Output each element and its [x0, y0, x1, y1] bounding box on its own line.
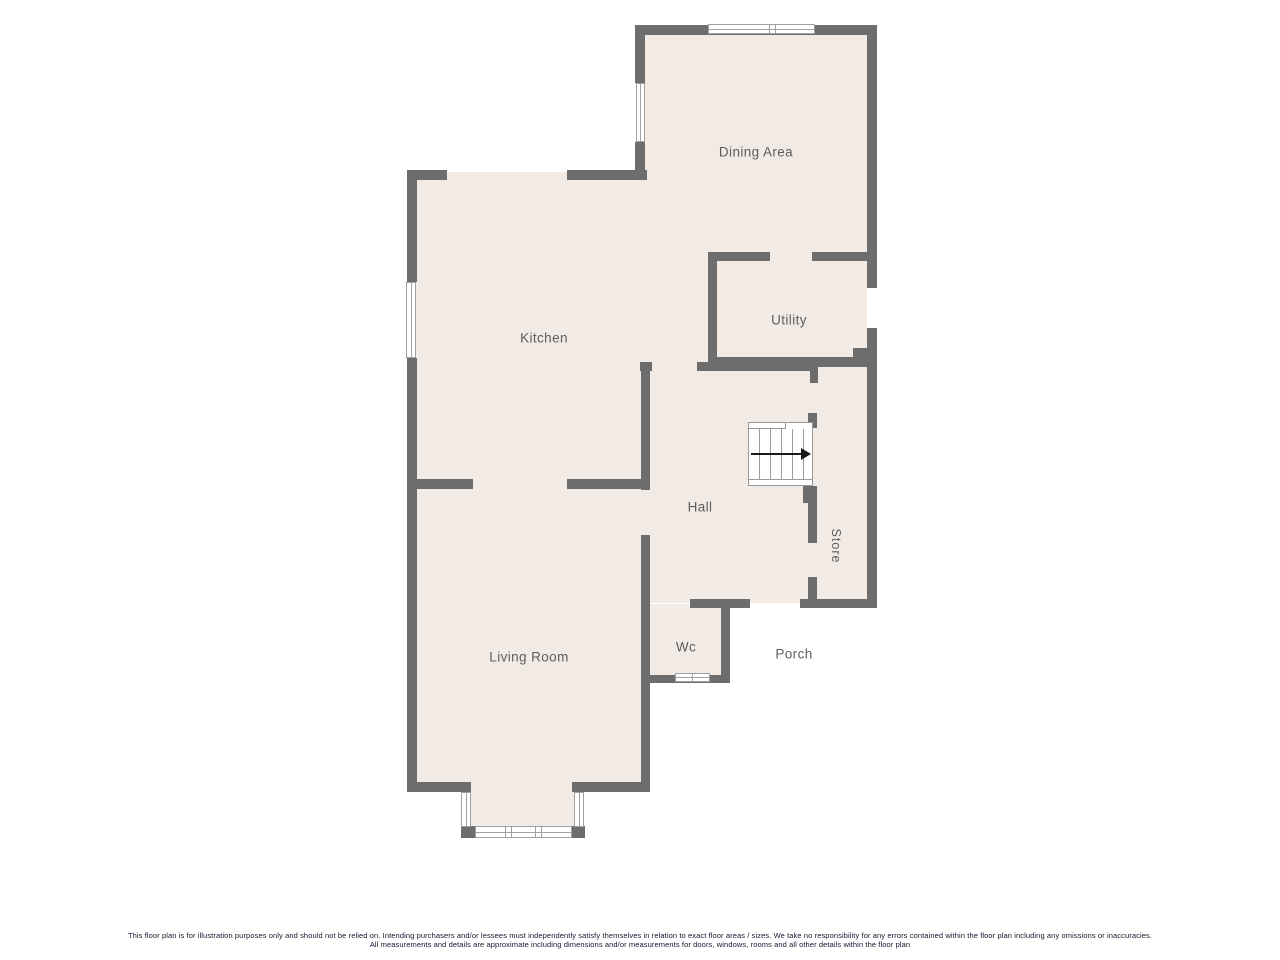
window: [675, 673, 710, 682]
room-label-dining: Dining Area: [719, 145, 793, 160]
disclaimer-line-1: This floor plan is for illustration purp…: [0, 931, 1280, 940]
wall: [708, 252, 717, 367]
room-label-hall: Hall: [688, 500, 713, 515]
wall: [641, 535, 650, 792]
wall: [808, 503, 817, 543]
wall: [635, 142, 645, 180]
stairs-up-arrow-icon: [801, 448, 811, 460]
stairs-up-arrow-icon: [751, 453, 803, 455]
window: [708, 24, 815, 34]
disclaimer-line-2: All measurements and details are approxi…: [0, 940, 1280, 949]
floor-bay: [468, 785, 574, 828]
room-label-wc: Wc: [676, 640, 696, 655]
window: [406, 282, 416, 358]
floor-utility: [712, 255, 867, 362]
room-label-porch: Porch: [775, 647, 812, 662]
wall: [407, 170, 417, 282]
wall: [567, 479, 649, 489]
wall: [635, 25, 645, 83]
wall: [812, 252, 867, 261]
wall: [867, 328, 877, 608]
floor-plan: Dining Area Kitchen Utility Hall Store L…: [0, 0, 1280, 960]
room-label-utility: Utility: [771, 313, 807, 328]
wall: [867, 25, 877, 288]
wall: [461, 826, 475, 838]
wall: [641, 362, 650, 490]
floor-living: [412, 484, 645, 787]
room-label-kitchen: Kitchen: [520, 331, 568, 346]
room-label-living: Living Room: [489, 650, 568, 665]
floor-plan-page: Dining Area Kitchen Utility Hall Store L…: [0, 0, 1280, 960]
wall: [572, 782, 649, 792]
wall: [708, 252, 770, 261]
window: [461, 792, 471, 827]
wall: [803, 486, 817, 503]
wall: [810, 367, 818, 383]
wall: [690, 599, 750, 608]
room-label-store: Store: [829, 529, 843, 564]
stair-tread: [749, 479, 812, 480]
wall: [417, 479, 473, 489]
staircase-landing: [748, 422, 786, 429]
floor-kitchen: [412, 172, 647, 487]
wall: [808, 577, 817, 599]
window: [574, 792, 584, 827]
wall: [571, 826, 585, 838]
disclaimer: This floor plan is for illustration purp…: [0, 931, 1280, 949]
window: [636, 83, 645, 142]
wall: [721, 608, 730, 683]
window: [475, 826, 572, 838]
wall: [800, 599, 877, 608]
wall: [407, 358, 417, 792]
